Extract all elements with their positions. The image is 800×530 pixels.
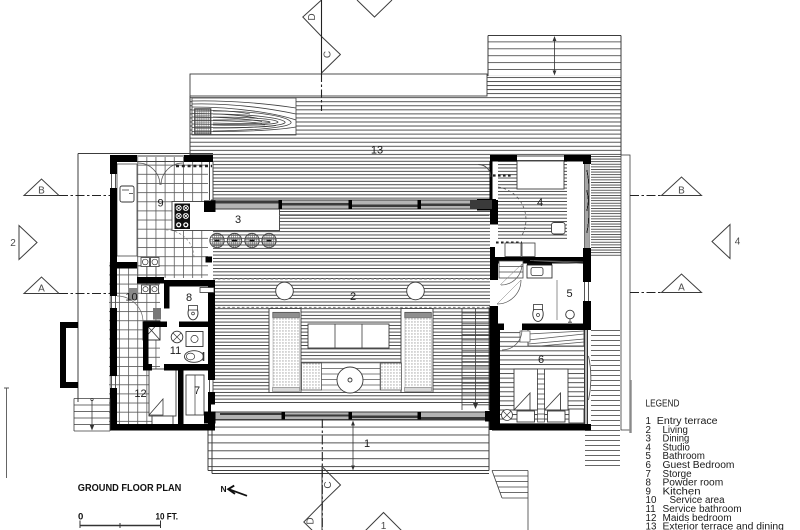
svg-text:3: 3 [235, 214, 241, 226]
svg-text:9: 9 [157, 198, 163, 210]
svg-text:A: A [38, 284, 45, 295]
svg-text:10 FT.: 10 FT. [156, 511, 179, 522]
svg-text:N: N [221, 484, 227, 494]
svg-text:GROUND FLOOR PLAN: GROUND FLOOR PLAN [78, 483, 182, 494]
svg-text:1: 1 [364, 438, 370, 450]
svg-text:7: 7 [194, 385, 200, 397]
svg-text:8: 8 [186, 292, 192, 304]
svg-text:10: 10 [125, 292, 137, 304]
svg-text:6: 6 [538, 354, 544, 366]
svg-text:12: 12 [134, 388, 146, 400]
svg-text:D: D [306, 517, 317, 524]
svg-text:C: C [323, 51, 334, 58]
svg-text:0: 0 [78, 511, 83, 522]
svg-text:11: 11 [170, 345, 181, 357]
svg-text:4: 4 [537, 197, 543, 209]
svg-text:13: 13 [646, 522, 657, 530]
svg-text:Exterior terrace and dining: Exterior terrace and dining [663, 522, 784, 530]
svg-text:1: 1 [381, 521, 387, 530]
svg-text:D: D [307, 13, 318, 20]
svg-text:LEGEND: LEGEND [646, 399, 680, 410]
svg-text:13: 13 [371, 145, 383, 157]
svg-text:5: 5 [566, 288, 572, 300]
svg-text:2: 2 [350, 291, 356, 303]
svg-text:4: 4 [735, 237, 741, 248]
svg-text:C: C [323, 481, 334, 488]
svg-text:B: B [678, 186, 685, 197]
svg-text:B: B [38, 186, 45, 197]
svg-text:2: 2 [10, 238, 16, 249]
svg-text:A: A [678, 283, 685, 294]
